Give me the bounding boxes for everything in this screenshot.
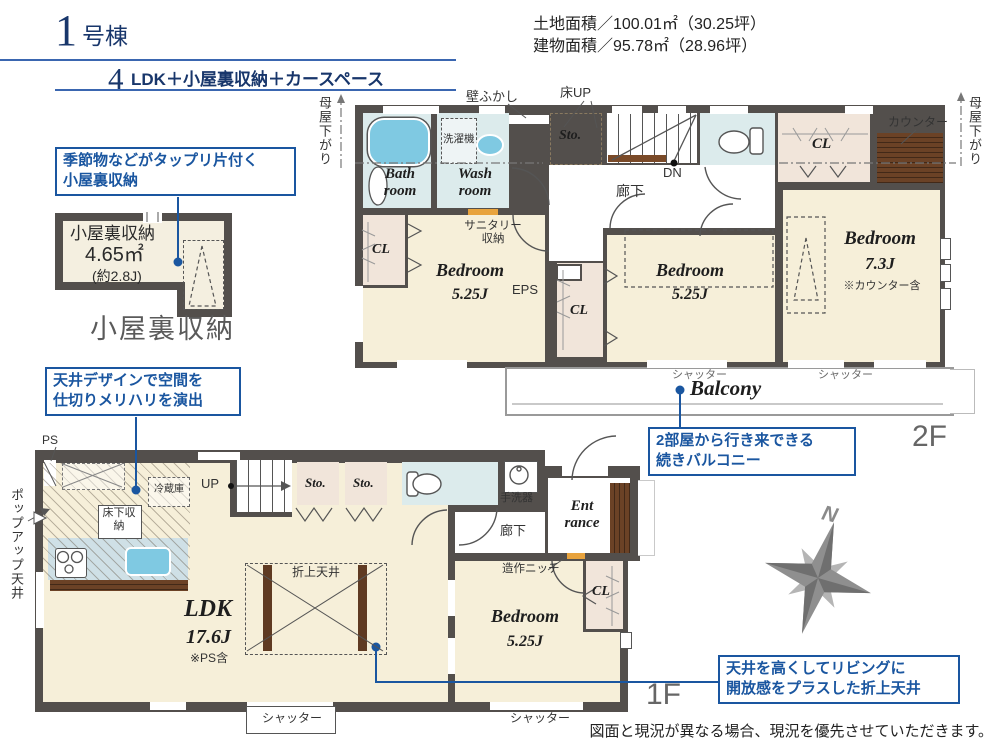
dn-label: DN [663, 166, 682, 181]
attic-area-jo: (約2.8J) [92, 268, 142, 284]
hall2f-label: 廊下 [616, 183, 644, 199]
window [612, 106, 642, 114]
bedroom1-name: Bedroom [420, 260, 520, 281]
underfloor-label: 床下収納 [100, 507, 138, 532]
ceiling-beam-left [263, 565, 272, 651]
window [198, 452, 240, 460]
window [397, 360, 467, 368]
porch [638, 480, 655, 556]
washroom-label: Wash room [446, 166, 504, 201]
window [710, 106, 748, 114]
floor2-label: 2F [912, 420, 947, 455]
attic-ladder-box [183, 240, 224, 310]
fridge-label: 冷蔵庫 [151, 484, 187, 496]
wall-fukashi-strip [509, 115, 549, 124]
window [845, 106, 873, 114]
stairs1f [236, 460, 292, 512]
cl-mid-label: CL [570, 303, 588, 319]
pantry-box [62, 463, 125, 490]
window [150, 702, 186, 710]
attic-name: 小屋裏収納 [70, 224, 155, 244]
sliding-door [448, 638, 455, 674]
building-area: 建物面積／95.78㎡（28.96坪） [533, 38, 757, 56]
bay-window [940, 264, 951, 282]
storage1f-a-label: Sto. [305, 476, 326, 491]
bathtub [368, 118, 430, 166]
compass-north-label: N [819, 502, 840, 529]
moya-sagari-left: 母屋下がり [316, 96, 331, 176]
balcony-side [950, 369, 975, 414]
niche-label: 造作ニッチ [502, 563, 560, 576]
callout-ceiling-design: 天井デザインで空間を 仕切りメリハリを演出 [45, 367, 241, 416]
stairs1f-wall-b [230, 512, 292, 517]
front-door-opening [562, 466, 608, 476]
stairs2f-landing [608, 155, 666, 162]
floorplan-page: 1 号棟 4 LDK＋小屋裏収納＋カースペース 土地面積／100.01㎡（30.… [0, 0, 1000, 750]
bedroom3-note: ※カウンター含 [832, 280, 932, 293]
window [383, 106, 439, 114]
kitchen-sink [125, 547, 171, 576]
callout-folded-ceiling: 天井を高くしてリビングに 開放感をプラスした折上天井 [718, 655, 960, 704]
floor-up-label: 床UP [560, 86, 591, 101]
bedroom1f-size: 5.25J [475, 633, 575, 651]
layout-prefix: 4 [108, 61, 124, 97]
moya-sagari-right: 母屋下がり [966, 96, 981, 176]
balcony-inner-line [512, 403, 943, 405]
window [36, 572, 44, 628]
folded-ceiling-label: 折上天井 [292, 566, 340, 580]
floor1-label: 1F [646, 678, 681, 713]
entrance-label: Ent rance [556, 498, 608, 533]
cl1f-label: CL [592, 584, 610, 600]
eps-label: EPS [512, 283, 538, 298]
window [647, 360, 727, 368]
basin-floor [504, 461, 538, 493]
cl-left-label: CL [372, 242, 390, 258]
hall2f-leg [549, 165, 603, 261]
bedroom3-name: Bedroom [830, 228, 930, 250]
unit-suffix: 号棟 [82, 24, 128, 50]
kitchen-front-strip [50, 580, 188, 591]
counter-label: カウンター [888, 116, 948, 130]
window [490, 702, 583, 710]
ps-label: PS [42, 434, 58, 448]
up-label: UP [201, 477, 219, 492]
sanitary-label: サニタリー 収納 [458, 220, 528, 246]
shutter-label-2f-b: シャッター [818, 369, 873, 382]
callout-balcony: 2部屋から行き来できる 続きバルコニー [648, 427, 856, 476]
popup-ceiling-label: ポップアップ天井 [8, 488, 23, 613]
bathroom-label: Bath room [372, 166, 428, 201]
washer-label: 洗濯機 [443, 133, 475, 145]
land-area: 土地面積／100.01㎡（30.25坪） [533, 16, 766, 34]
shoe-cabinet [610, 483, 630, 553]
stairs1f-wall [230, 460, 236, 517]
ldk-size: 17.6J [186, 626, 231, 649]
counter2f [877, 133, 943, 183]
eps-box [556, 264, 582, 281]
hall1f-label: 廊下 [500, 524, 526, 539]
sliding-door [448, 580, 455, 616]
bedroom2-size: 5.25J [640, 286, 740, 304]
toilet2f-floor [700, 113, 775, 165]
wall-fukashi-label: 壁ふかし [466, 90, 518, 105]
bedroom3-size: 7.3J [830, 254, 930, 274]
disclaimer: 図面と現況が異なる場合、現況を優先させていただきます。 [295, 723, 993, 740]
ceiling-beam-right [358, 565, 367, 651]
storage1f-b-label: Sto. [353, 476, 374, 491]
attic-hatch-opening [143, 211, 162, 223]
balcony-label: Balcony [690, 376, 761, 400]
window [874, 360, 926, 368]
hand-basin-label: 手洗器 [500, 492, 533, 505]
bedroom1f-name: Bedroom [475, 606, 575, 627]
attic-area-sqm: 4.65㎡ [85, 244, 144, 267]
bedroom3-floor [783, 190, 940, 362]
toilet1f-floor [402, 462, 498, 505]
attic-caption: 小屋裏収納 [90, 314, 235, 345]
callout-attic: 季節物などがタップリ片付く 小屋裏収納 [55, 147, 296, 196]
ldk-label: LDK [184, 596, 232, 624]
window [788, 360, 844, 368]
unit-number: 1 [55, 6, 77, 57]
bedroom2-name: Bedroom [640, 260, 740, 281]
layout-text: LDK＋小屋裏収納＋カースペース [131, 70, 384, 90]
bay-window [940, 288, 951, 310]
ldk-note: ※PS含 [190, 652, 228, 666]
storage2f-label: Sto. [559, 128, 581, 144]
window [479, 106, 505, 114]
bay-window [620, 632, 632, 649]
cl-top-label: CL [812, 136, 831, 153]
title-rule-top [0, 59, 456, 61]
bay-window [940, 238, 951, 260]
niche-strip [567, 553, 585, 559]
window [658, 106, 686, 114]
floor1-notch-top [545, 450, 640, 466]
window [355, 286, 363, 342]
sanitary-strip [468, 209, 498, 215]
stove [55, 548, 87, 578]
bedroom1-size: 5.25J [420, 286, 520, 304]
